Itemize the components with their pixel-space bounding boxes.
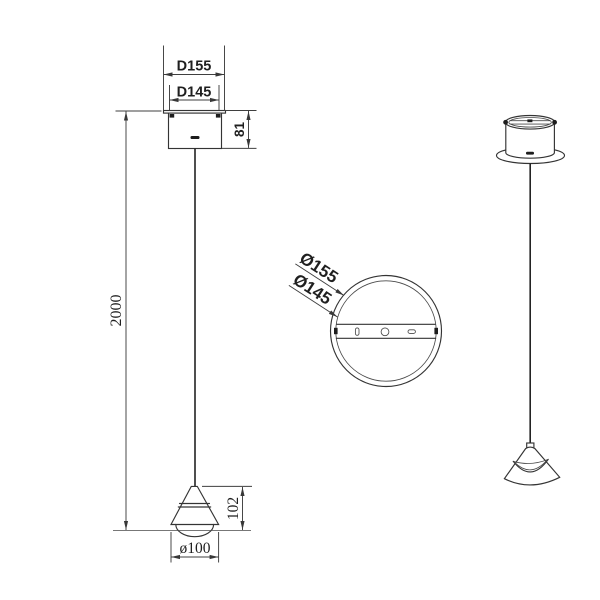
dimension-drawing-canvas: D155 D145 2000 8 xyxy=(0,0,600,600)
canopy-outer-circle xyxy=(331,276,442,387)
cable-gland xyxy=(191,136,200,139)
canopy-body xyxy=(169,113,222,148)
rim-fastener-left xyxy=(503,120,508,125)
dim-suspension-length: 2000 xyxy=(108,111,162,530)
shade-height-label: 102 xyxy=(225,497,242,520)
mounting-bracket xyxy=(334,324,438,338)
canopy-clip-right xyxy=(216,114,221,118)
front-view: D155 D145 2000 8 xyxy=(108,46,257,563)
shade-3d xyxy=(504,443,559,485)
suspension-length-label: 2000 xyxy=(108,295,125,327)
shade-front xyxy=(171,486,219,536)
dim-canopy-height: 81 xyxy=(222,111,257,149)
rim-fastener-right xyxy=(552,120,557,125)
technical-drawing: D155 D145 2000 8 xyxy=(0,0,600,600)
canopy-clip-left xyxy=(170,114,175,118)
shade-cone-3d xyxy=(504,447,559,485)
bracket-end-mark-left xyxy=(334,328,338,334)
bracket-slot-vertical xyxy=(355,328,359,335)
bracket-end-mark-right xyxy=(434,328,438,334)
canopy-inner-circle xyxy=(336,281,436,381)
canopy-height-label: 81 xyxy=(232,122,247,138)
bracket-slot-horizontal xyxy=(408,330,415,334)
canopy-outer-diameter-label: D155 xyxy=(177,59,212,75)
shade-diameter-label: ø100 xyxy=(180,540,211,557)
bracket-notch-3d xyxy=(527,119,532,122)
perspective-view xyxy=(497,116,565,485)
bracket-center-hole xyxy=(381,328,389,336)
dim-canopy-inner: D145 xyxy=(170,85,220,112)
canopy-front xyxy=(164,111,226,149)
shade-cone xyxy=(171,486,219,524)
dim-canopy-outer: D155 xyxy=(164,46,225,111)
top-view: Ø155 Ø145 xyxy=(289,248,442,387)
canopy-3d xyxy=(497,116,565,164)
cable-gland-3d xyxy=(526,152,534,155)
canopy-inner-diameter-label: D145 xyxy=(177,85,212,101)
